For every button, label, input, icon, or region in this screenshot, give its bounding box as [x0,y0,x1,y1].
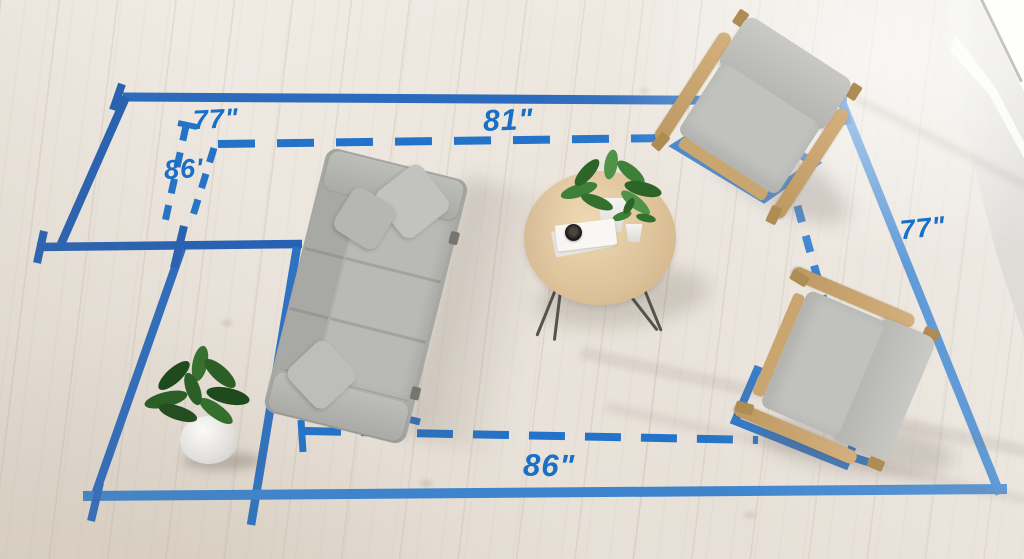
tape-bottom-line [83,489,1007,496]
table-plant-small [612,200,662,250]
leaf [157,400,199,426]
tape-tick [301,420,303,452]
dashed-line-81 [218,138,668,144]
measurement-label-bottom: 86" [523,448,576,485]
leaf [635,212,656,224]
cup [565,224,582,241]
measurement-label-left: 86' [163,153,204,186]
tape-tick [37,231,44,263]
chair-leg [866,456,885,472]
measurement-label-top-left: 77" [192,103,239,136]
plant-pot [624,224,644,242]
tape-left-upper-line [61,97,126,244]
tape-tick [174,226,184,268]
tape-mid-left-line [37,244,302,247]
measurement-label-top-center: 81" [482,103,534,139]
measurement-label-right: 77" [899,211,948,247]
leaf [579,190,615,214]
tape-tick [91,483,100,521]
living-room-scene: 77" 86' 81" 77" 86" [0,0,1024,559]
floor-plant [142,352,252,472]
